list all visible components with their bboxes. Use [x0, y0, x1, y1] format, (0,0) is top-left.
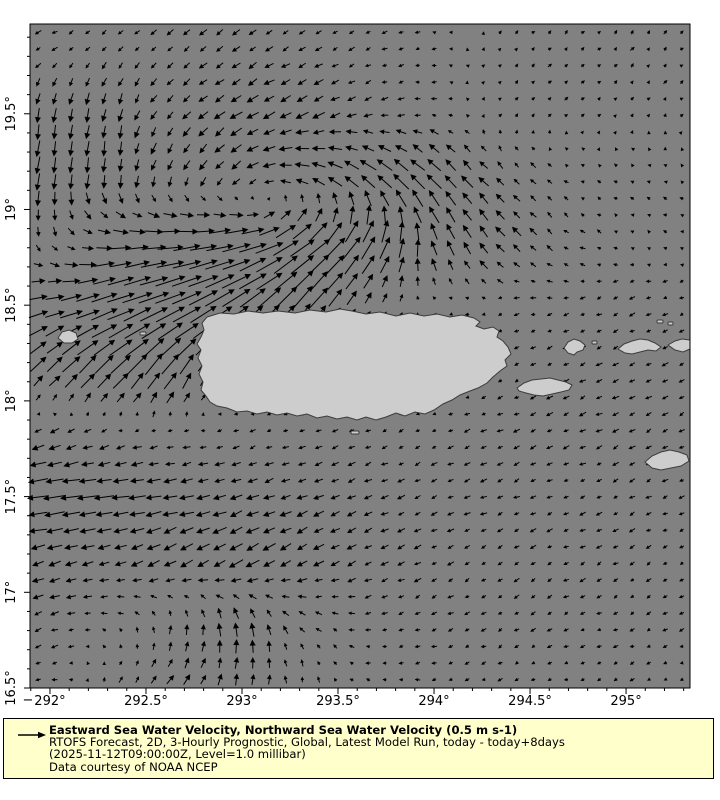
- islet-speck: [351, 431, 359, 434]
- x-tick-label: 292.5°: [124, 694, 168, 709]
- erddap-velocity-graph: 292°292.5°293°293.5°294°294.5°295°16.5°1…: [0, 0, 720, 800]
- y-tick-label: 18°: [4, 389, 19, 412]
- islet-speck: [140, 332, 146, 335]
- x-tick-label: 294.5°: [508, 694, 552, 709]
- x-tick-label: 293.5°: [316, 694, 360, 709]
- x-tick-label: 294°: [418, 694, 449, 709]
- y-tick-label: 18.5°: [4, 287, 19, 322]
- x-tick-label: 295°: [610, 694, 641, 709]
- x-tick-label: 293°: [226, 694, 257, 709]
- reference-arrow-icon: [17, 730, 47, 740]
- islet-speck: [657, 320, 663, 323]
- islet-speck: [592, 341, 597, 344]
- velocity-map: 292°292.5°293°293.5°294°294.5°295°16.5°1…: [0, 0, 720, 800]
- x-tick-label: 292°: [34, 694, 65, 709]
- legend-box: Eastward Sea Water Velocity, Northward S…: [3, 718, 714, 779]
- y-tick-label: 19°: [4, 198, 19, 221]
- axis-corner-dash: −: [23, 693, 34, 708]
- islet-speck: [668, 322, 673, 325]
- y-tick-label: 17.5°: [4, 479, 19, 514]
- legend-time-level-line: (2025-11-12T09:00:00Z, Level=1.0 milliba…: [49, 748, 709, 760]
- y-tick-label: 16.5°: [4, 670, 19, 705]
- legend-credit-line: Data courtesy of NOAA NCEP: [49, 761, 709, 773]
- y-tick-label: 17°: [4, 581, 19, 604]
- y-tick-label: 19.5°: [4, 96, 19, 131]
